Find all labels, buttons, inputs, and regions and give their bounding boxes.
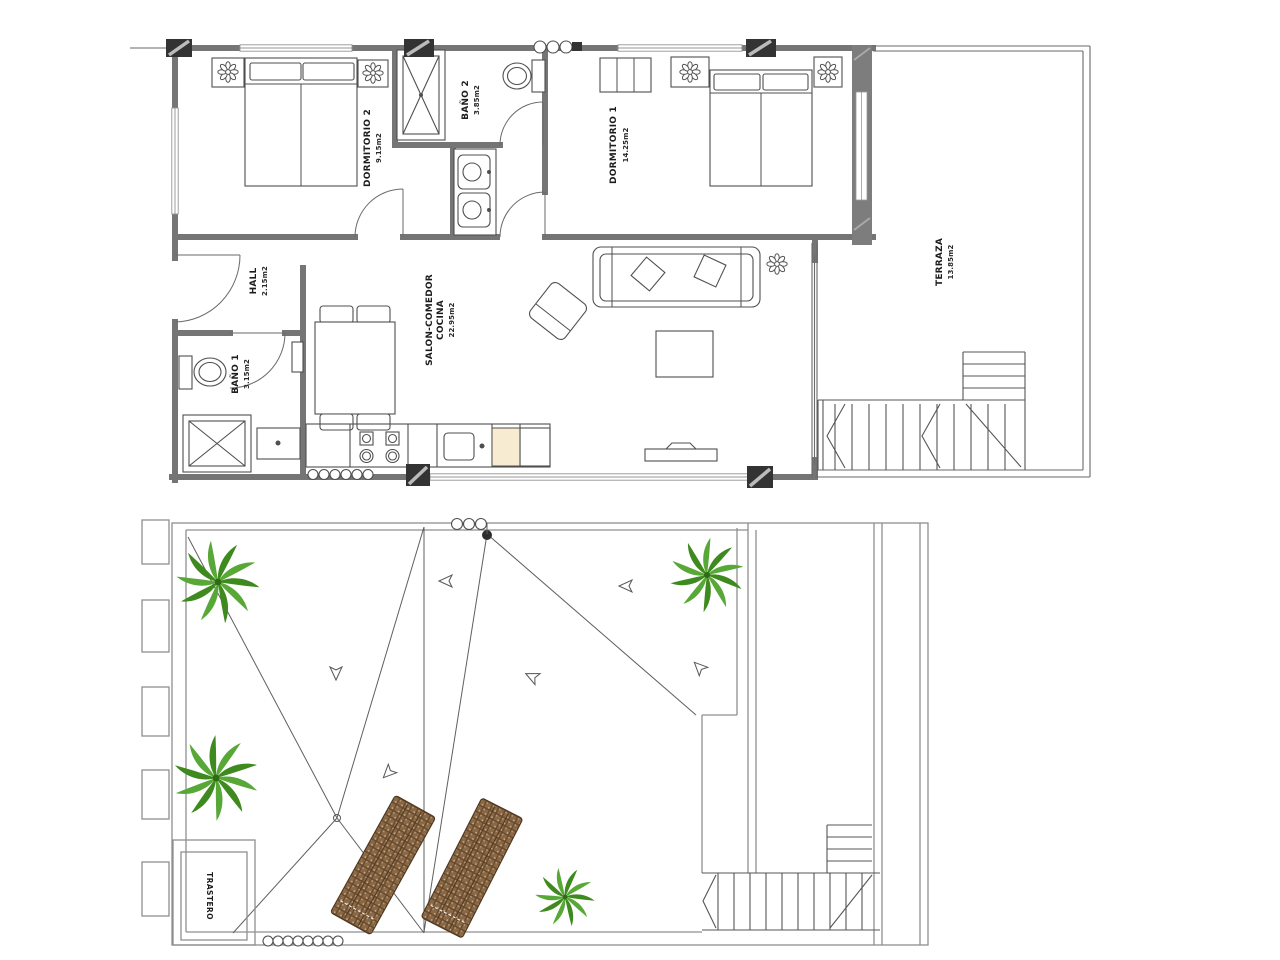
room-hall: HALL 2.15m2 [249,266,269,296]
floor-plan-drawing: DORMITORIO 2 9.15m2 [0,0,1280,960]
double-bed-icon [710,70,812,186]
room-label: TERRAZA [935,238,945,286]
plant-icon [680,62,700,82]
toilet-icon [179,356,226,389]
roof-slope-lines [188,523,696,933]
slope-arrow-icon [330,667,342,680]
stairs-icon [702,825,880,930]
window-icon [618,45,742,51]
room-area-label: 3.85m2 [473,85,481,115]
upper-floor-plan: DORMITORIO 2 9.15m2 [130,39,1090,488]
window-icon [430,474,748,480]
sofa-icon [593,247,760,307]
room-label: BAÑO 1 [230,354,241,394]
shower-icon [183,415,251,472]
slope-arrow-icon [690,658,708,676]
slope-arrow-icon [379,764,397,782]
toilet-icon [503,60,545,92]
room-area-label: 22.95m2 [448,302,456,337]
window-icon [172,108,178,214]
palm-tree-icon [156,718,276,838]
sun-loungers [330,795,523,938]
door-icon [355,189,403,237]
vent-circles-icon [534,41,582,53]
double-bed-icon [245,58,357,186]
room-bano-1: BAÑO 1 3.15m2 [179,354,300,472]
plant-icon [218,62,238,82]
column-icon [404,39,434,57]
door-icon [500,102,543,145]
room-label: DORMITORIO 1 [609,106,619,184]
slope-arrow-icon [523,668,540,684]
plant-icon [363,63,383,83]
floor-plan-page: DORMITORIO 2 9.15m2 [0,0,1280,960]
room-label: BAÑO 2 [460,80,471,120]
room-dormitorio-2: DORMITORIO 2 9.15m2 [212,58,388,187]
room-trastero: TRASTERO [173,840,255,945]
shower-icon [397,50,445,140]
sun-lounger-icon [330,795,435,935]
solarium-boundary [172,523,928,945]
room-area-label: 2.15m2 [261,266,269,296]
room-dormitorio-1: DORMITORIO 1 14.25m2 [600,57,842,186]
room-label-line2: COCINA [436,300,446,340]
column-icon [747,466,773,488]
slope-arrow-icon [619,580,632,592]
stairs-icon [818,352,1025,470]
room-area-label: 13.85m2 [947,244,955,279]
room-label: TRASTERO [205,872,214,920]
armchair-icon [527,280,589,342]
room-area-label: 14.25m2 [622,127,630,162]
sun-lounger-icon [421,798,523,938]
wardrobe-icon [600,58,651,92]
column-icon [406,464,430,486]
oven-icon [492,428,520,466]
roof-solarium-plan: TRASTERO [142,519,928,947]
kitchen-sink-icon [444,433,474,460]
column-icon [166,39,192,57]
double-sink-vanity-icon [454,149,496,235]
fridge-icon [520,428,550,466]
room-bano-2: BAÑO 2 3.85m2 [397,41,582,235]
slope-arrows [330,575,708,782]
plant-icon [818,62,838,82]
sliding-glass-door-icon [812,243,817,477]
slope-arrow-icon [439,575,452,587]
entrance-door-icon [175,255,240,322]
palm-tree-icon [657,526,757,625]
edge-circles-top [452,519,487,530]
palm-tree-icon [169,534,266,631]
palm-tree-icon [530,862,599,932]
column-icon [746,39,776,57]
door-icon [500,192,545,237]
room-label: HALL [249,268,259,295]
room-label: DORMITORIO 2 [363,109,373,187]
room-label: SALON-COMEDOR [425,274,435,366]
coffee-table-icon [656,331,713,377]
room-salon-comedor: SALON-COMEDOR COCINA 22.95m2 [292,247,787,480]
dining-table-icon [292,306,395,430]
sink-icon [257,428,300,459]
tv-bench-icon [645,443,717,461]
room-area-label: 9.15m2 [375,133,383,163]
plant-icon [767,254,787,274]
window-icon [240,45,352,51]
neighbour-openings [142,520,169,916]
room-area-label: 3.15m2 [243,359,251,389]
